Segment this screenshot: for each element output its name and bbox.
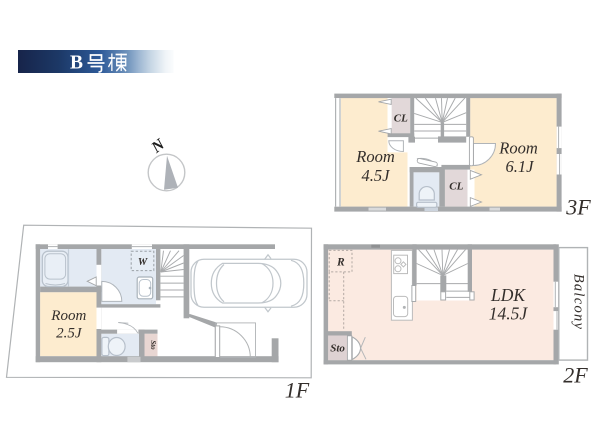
svg-text:3F: 3F [565,195,591,220]
svg-text:Balcony: Balcony [571,274,587,331]
svg-text:CL: CL [394,113,408,125]
svg-text:Room: Room [355,147,395,166]
svg-text:CL: CL [449,181,463,193]
svg-text:Room: Room [50,308,86,324]
svg-text:2.5J: 2.5J [56,326,83,342]
svg-text:6.1J: 6.1J [506,157,535,176]
svg-text:4.5J: 4.5J [362,166,391,185]
svg-text:Room: Room [498,139,538,158]
svg-text:LDK: LDK [490,285,526,305]
svg-text:1F: 1F [285,378,310,403]
svg-text:W: W [138,257,148,268]
svg-text:2F: 2F [563,363,588,388]
svg-text:B: B [70,53,83,74]
svg-text:14.5J: 14.5J [489,304,529,324]
svg-text:Sto: Sto [149,340,157,350]
svg-text:Sto: Sto [330,343,345,355]
svg-text:R: R [336,257,345,269]
